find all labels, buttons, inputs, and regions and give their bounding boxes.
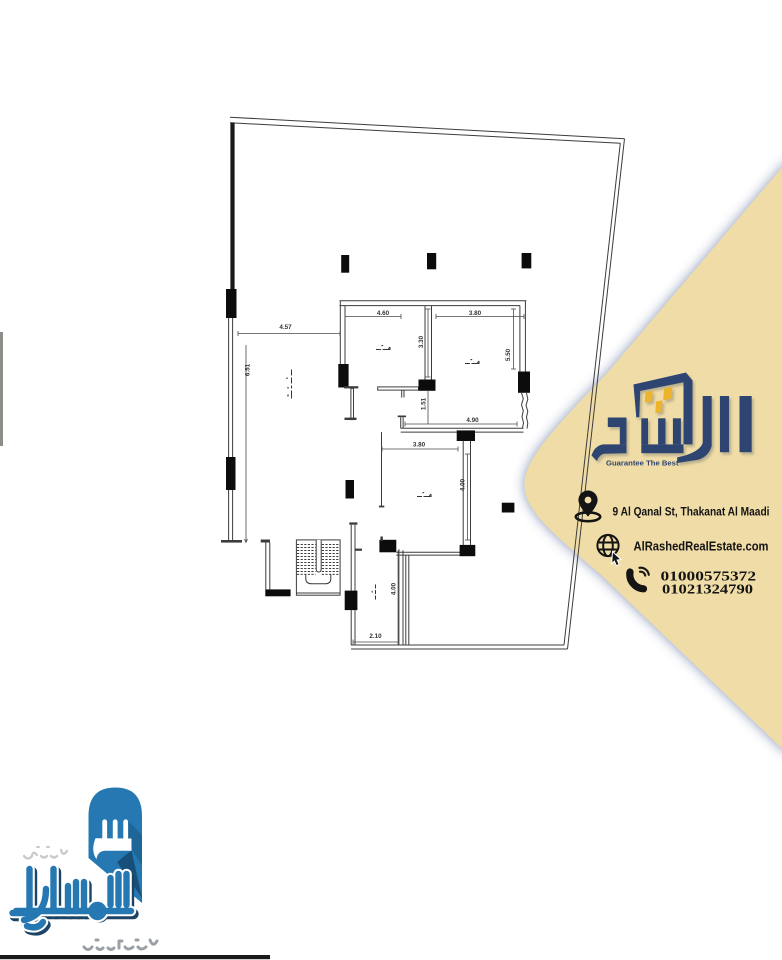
svg-text:4.00: 4.00 <box>391 582 398 595</box>
svg-text:AlRashedRealEstate.com: AlRashedRealEstate.com <box>634 540 769 554</box>
svg-text:4.60: 4.60 <box>377 310 390 317</box>
svg-text:3.80: 3.80 <box>413 442 426 449</box>
svg-text:9 Al Qanal St, Thakanat Al Maa: 9 Al Qanal St, Thakanat Al Maadi <box>613 505 770 519</box>
svg-text:1.51: 1.51 <box>421 397 428 410</box>
svg-text:3.30: 3.30 <box>418 335 425 348</box>
svg-text:3.80: 3.80 <box>469 310 482 317</box>
svg-text:Guarantee The Best: Guarantee The Best <box>606 459 679 468</box>
svg-text:4.57: 4.57 <box>279 324 292 331</box>
svg-text:2.10: 2.10 <box>369 633 382 640</box>
svg-text:5.50: 5.50 <box>505 348 512 361</box>
svg-text:4.00: 4.00 <box>460 478 467 491</box>
svg-text:6.51: 6.51 <box>245 363 252 376</box>
svg-text:4.90: 4.90 <box>466 417 479 424</box>
svg-text:01021324790: 01021324790 <box>662 582 753 597</box>
